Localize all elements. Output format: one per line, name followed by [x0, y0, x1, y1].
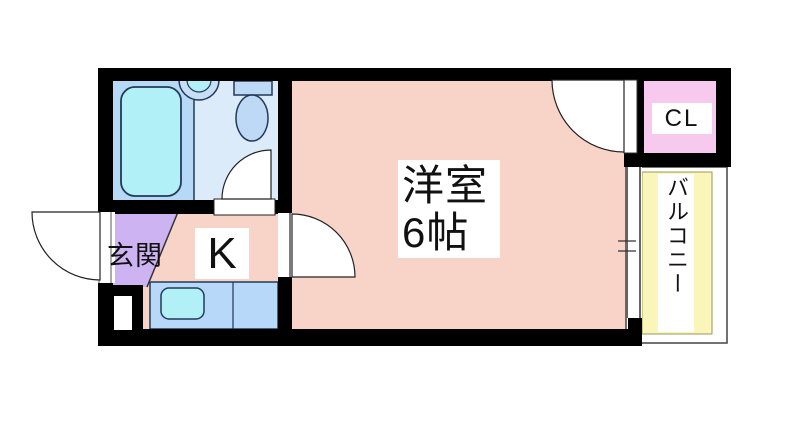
wall-mid-vertical	[278, 68, 292, 346]
main-room-label-box: 洋室 6帖	[398, 160, 500, 258]
floorplan-canvas: 玄関 K 洋室 6帖 CL バルコニー	[0, 0, 800, 425]
bathtub	[121, 87, 181, 196]
kitchen-sink	[161, 288, 204, 319]
toilet-bowl	[236, 95, 268, 141]
wall-window-bottom-block	[628, 318, 642, 332]
wall-closet-bottom	[624, 153, 731, 167]
kitchen-label-box: K	[195, 228, 249, 279]
toilet-tank	[234, 81, 272, 95]
closet-door-leaf	[624, 80, 637, 153]
entry-door-arc	[32, 212, 100, 280]
kitchen-label: K	[207, 229, 236, 279]
wall-left-upper	[98, 68, 113, 214]
entrance-label: 玄関	[107, 234, 163, 273]
wall-closet-right	[716, 68, 731, 167]
wall-bottom	[98, 329, 642, 346]
corner-window	[114, 296, 132, 330]
balcony-label: バルコニー	[658, 176, 694, 334]
closet-label-box: CL	[652, 103, 712, 134]
closet-label: CL	[665, 105, 700, 133]
main-room-size-label: 6帖	[402, 209, 500, 256]
main-room-label: 洋室	[402, 162, 500, 209]
bathroom-door-opening	[214, 199, 275, 215]
